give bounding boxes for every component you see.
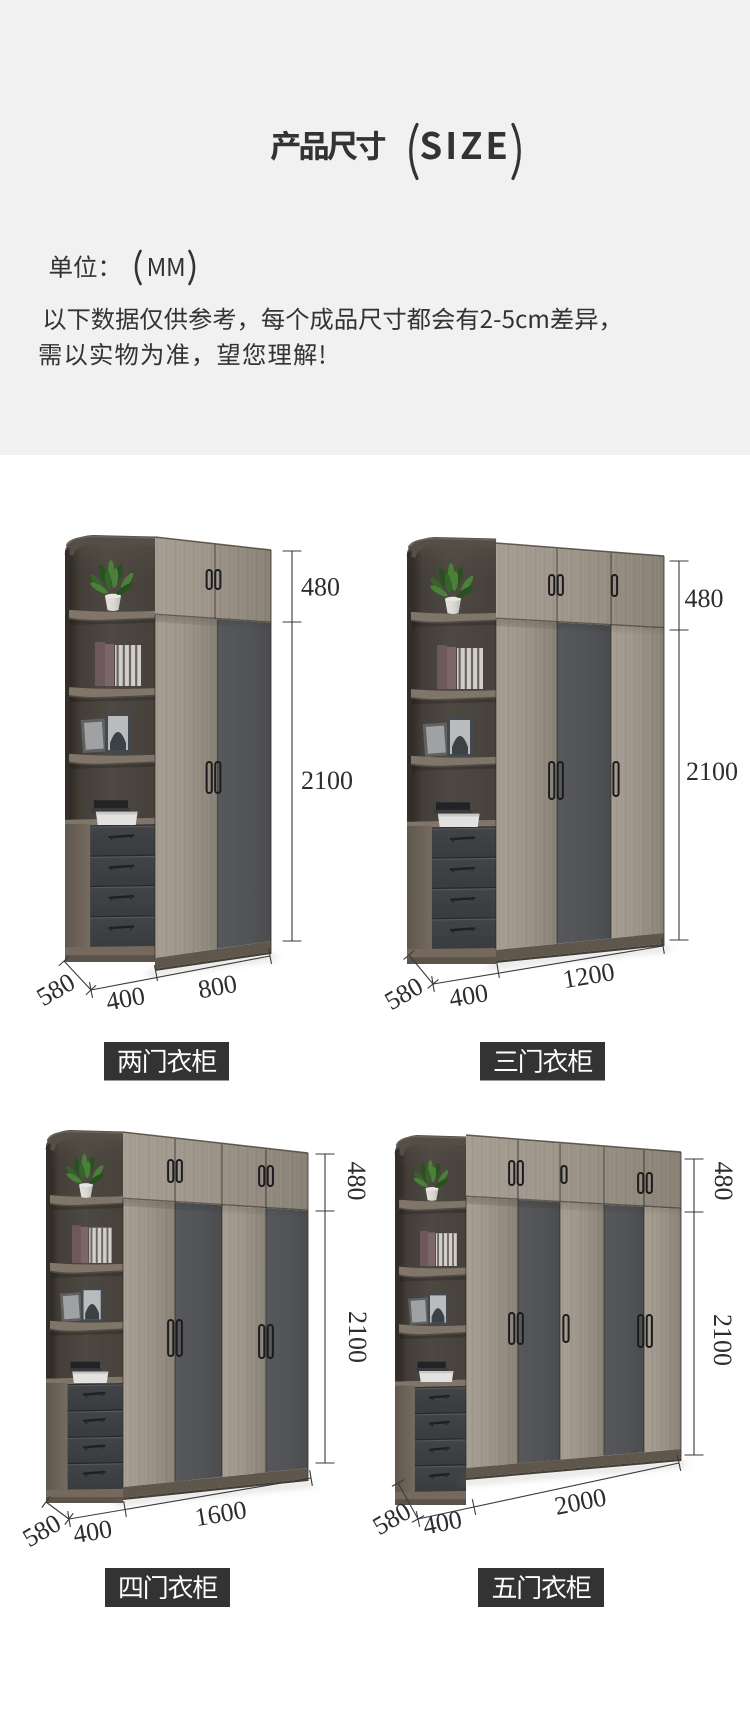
svg-text:480: 480	[685, 584, 724, 613]
svg-text:2100: 2100	[686, 757, 738, 786]
svg-text:2100: 2100	[343, 1311, 372, 1363]
svg-text:480: 480	[301, 573, 340, 602]
svg-text:480: 480	[342, 1162, 371, 1201]
svg-text:2100: 2100	[708, 1314, 737, 1366]
svg-text:2100: 2100	[301, 766, 353, 795]
svg-text:480: 480	[709, 1162, 738, 1201]
